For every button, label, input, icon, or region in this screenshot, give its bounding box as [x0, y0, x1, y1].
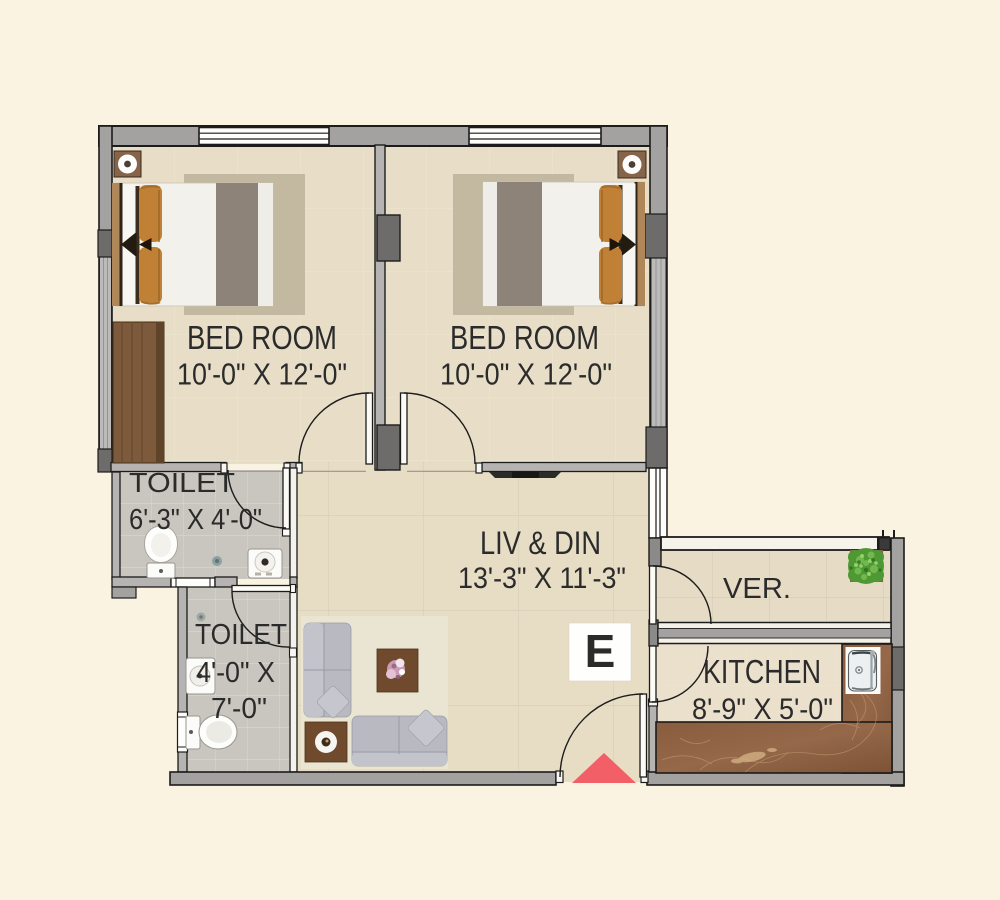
svg-text:13'-3" X 11'-3": 13'-3" X 11'-3"	[458, 562, 626, 595]
svg-text:KITCHEN: KITCHEN	[703, 653, 821, 690]
svg-text:LIV & DIN: LIV & DIN	[480, 525, 601, 561]
svg-text:TOILET: TOILET	[129, 467, 235, 498]
svg-text:8'-9" X 5'-0": 8'-9" X 5'-0"	[692, 693, 833, 726]
svg-text:E: E	[585, 625, 616, 677]
svg-text:BED ROOM: BED ROOM	[450, 319, 599, 356]
svg-text:6'-3" X 4'-0": 6'-3" X 4'-0"	[129, 504, 262, 536]
svg-text:7'-0": 7'-0"	[211, 693, 267, 725]
svg-text:4'-0" X: 4'-0" X	[196, 657, 275, 689]
svg-text:10'-0" X 12'-0": 10'-0" X 12'-0"	[177, 357, 347, 392]
svg-text:TOILET: TOILET	[195, 619, 287, 651]
svg-text:10'-0" X 12'-0": 10'-0" X 12'-0"	[440, 357, 612, 392]
svg-text:BED ROOM: BED ROOM	[187, 319, 337, 356]
svg-text:VER.: VER.	[723, 573, 791, 605]
